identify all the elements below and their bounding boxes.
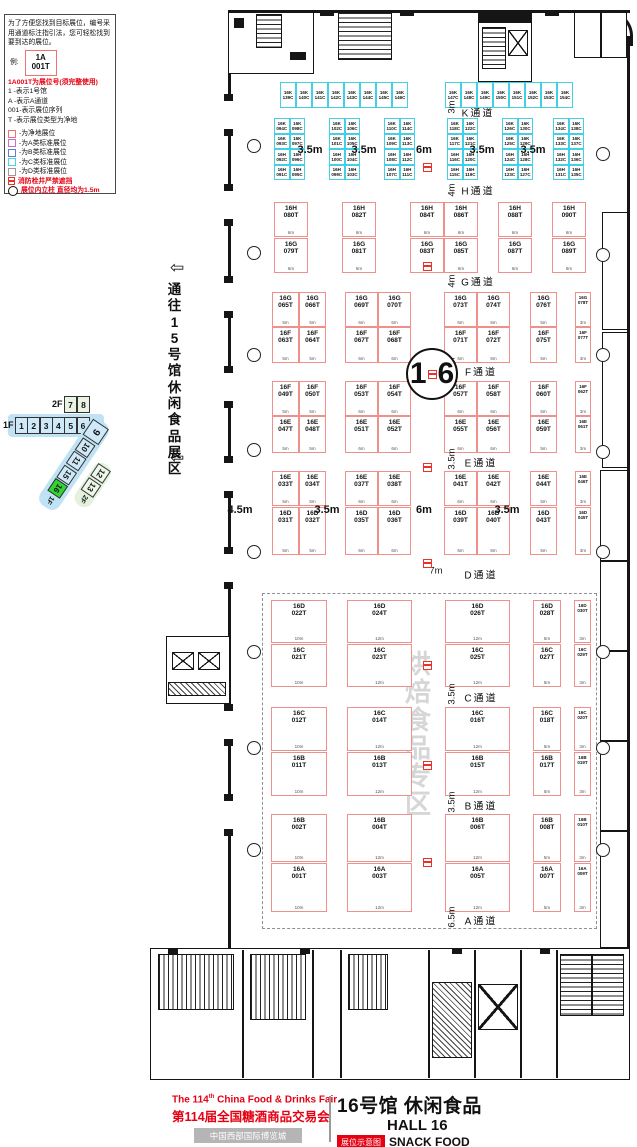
booth-width-label: 6m <box>553 231 585 236</box>
booth-width-label: 12m <box>348 745 411 750</box>
booth-16K130C: 16K130C <box>518 118 534 134</box>
door-leaf <box>224 582 233 589</box>
booth-width-label: 10m <box>272 790 326 795</box>
booth-16H092C: 16H092C <box>274 149 290 165</box>
booth-width-label: 5m <box>273 410 298 415</box>
booth-prefix: 16G <box>509 241 521 248</box>
booth-16K153C: 16K153C <box>541 82 557 108</box>
booth-number: 041T <box>453 481 468 488</box>
booth-16C020T: 16C020T3m <box>574 707 591 751</box>
booth-number: 067T <box>354 337 369 344</box>
booth-width-label: 6m <box>445 267 477 272</box>
booth-width-label: 6m <box>346 500 377 505</box>
booth-number: 104C <box>347 157 358 162</box>
booth-width-label: 6m <box>346 410 377 415</box>
corridor-char: 号 <box>166 347 183 363</box>
booth-number: 126C <box>504 126 515 131</box>
booth-16H127C: 16H127C <box>518 165 534 181</box>
booth-16K098C: 16K098C <box>290 118 306 134</box>
booth-prefix: 16G <box>355 295 367 302</box>
booth-16K133C: 16K133C <box>553 134 569 150</box>
booth-number: 065T <box>278 302 293 309</box>
booth-prefix: 16B <box>541 817 553 824</box>
booth-number: 016T <box>470 717 485 724</box>
booth-number: 145C <box>379 95 390 100</box>
booth-number: 146C <box>395 95 406 100</box>
booth-width-label: 5m <box>273 549 298 554</box>
structure-detail <box>474 950 476 1078</box>
booth-number: 066T <box>305 302 320 309</box>
booth-number: 073T <box>453 302 468 309</box>
booth-16B011T: 16B011T10m <box>271 752 327 796</box>
booth-width-label: 12m <box>348 856 411 861</box>
booth-16F049T: 16F049T5m <box>272 381 299 416</box>
fan-unit <box>198 652 220 670</box>
booth-16K110C: 16K110C <box>384 118 400 134</box>
booth-number: 018T <box>540 717 555 724</box>
booth-16K150C: 16K150C <box>493 82 509 108</box>
booth-width-label: 10m <box>272 681 326 686</box>
booth-prefix: 16H <box>353 205 365 212</box>
booth-16K122C: 16K122C <box>463 118 479 134</box>
booth-number: 044T <box>536 481 551 488</box>
booth-16G089T: 16G089T6m <box>552 238 586 273</box>
booth-16D026T: 16D026T12m <box>445 600 510 643</box>
booth-width-label: 6m <box>343 231 375 236</box>
pillar-column <box>247 443 261 457</box>
booth-prefix: 16B <box>293 755 305 762</box>
booth-width-label: 10m <box>272 745 326 750</box>
legend-key-item: -为净地展位 <box>8 129 112 139</box>
booth-16C012T: 16C012T10m <box>271 707 327 751</box>
booth-width-label: 12m <box>446 745 509 750</box>
booth-number: 037T <box>354 481 369 488</box>
corridor-char: 往 <box>166 298 183 314</box>
booth-number: 122C <box>465 126 476 131</box>
booth-16C021T: 16C021T10m <box>271 644 327 687</box>
booth-number: 022T <box>292 610 307 617</box>
structure-detail <box>168 682 226 696</box>
booth-width-label: 6m <box>445 549 476 554</box>
booth-number: 015T <box>470 762 485 769</box>
door-leaf <box>224 311 233 318</box>
stairs-n1 <box>338 12 392 60</box>
booth-width-label: 6m <box>346 549 377 554</box>
booth-number: 084T <box>420 212 435 219</box>
booth-number: 034T <box>305 481 320 488</box>
booth-16E034T: 16E034T5m <box>299 471 326 506</box>
booth-width-label: 5m <box>531 500 556 505</box>
booth-16K114C: 16K114C <box>400 118 416 134</box>
booth-16D028T: 16D028T5m <box>533 600 561 643</box>
booth-number: 127C <box>520 172 531 177</box>
booth-16D039T: 16D039T6m <box>444 507 477 555</box>
booth-number: 027T <box>540 654 555 661</box>
structure-detail <box>312 950 314 1078</box>
booth-16K118C: 16K118C <box>447 118 463 134</box>
booth-16C018T: 16C018T5m <box>533 707 561 751</box>
aisle-label-H通道: H通道 <box>461 183 494 198</box>
booth-16C025T: 16C025T12m <box>445 644 510 687</box>
booth-width-label: 5m <box>534 681 560 686</box>
door-s <box>300 948 310 954</box>
booth-number: 098C <box>292 126 303 131</box>
door-opening <box>226 710 234 740</box>
booth-width-label: 12m <box>446 856 509 861</box>
structure-detail <box>600 830 628 832</box>
aisle-label-G通道: G通道 <box>461 274 495 289</box>
booth-number: 055T <box>453 426 468 433</box>
booth-prefix: 16E <box>538 474 550 481</box>
fire-hydrant-icon <box>423 661 432 670</box>
booth-16H107C: 16H107C <box>384 165 400 181</box>
booth-class-swatch <box>8 130 16 138</box>
booth-number: 088T <box>508 212 523 219</box>
booth-width-label: 6m <box>379 447 410 452</box>
floor2-label: 2F <box>52 399 63 409</box>
booth-16E059T: 16E059T5m <box>530 416 557 453</box>
booth-16H090T: 16H090T6m <box>552 202 586 237</box>
booth-prefix: 16F <box>307 330 318 337</box>
booth-number: 124C <box>504 157 515 162</box>
booth-number: 151C <box>512 95 523 100</box>
booth-width-label: 6m <box>478 447 509 452</box>
booth-number: 125C <box>504 141 515 146</box>
category-en: SNACK FOOD <box>389 1135 470 1147</box>
booth-prefix: 16G <box>353 241 365 248</box>
booth-16H115C: 16H115C <box>447 165 463 181</box>
booth-16A001T: 16A001T10m <box>271 863 327 912</box>
door-n1 <box>320 10 334 16</box>
booth-width-label: 5m <box>273 357 298 362</box>
pillar-icon <box>8 186 18 196</box>
booth-width-label: 5m <box>534 637 560 642</box>
booth-prefix: 16C <box>374 647 386 654</box>
booth-16K101C: 16K101C <box>329 134 345 150</box>
booth-16G065T: 16G065T5m <box>272 292 299 327</box>
pillar-column <box>596 545 610 559</box>
structure-detail <box>600 560 628 562</box>
booth-prefix: 16D <box>472 603 484 610</box>
booth-16F058T: 16F058T6m <box>477 381 510 416</box>
booth-16K146C: 16K146C <box>392 82 408 108</box>
booth-16H123C: 16H123C <box>502 165 518 181</box>
booth-number: 063T <box>278 337 293 344</box>
aisle-label-C通道: C通道 <box>464 690 497 705</box>
booth-prefix: 16G <box>388 295 400 302</box>
pillar-column <box>247 645 261 659</box>
booth-number: 131C <box>555 172 566 177</box>
booth-number: 107C <box>386 172 397 177</box>
booth-width-label: 5m <box>273 321 298 326</box>
booth-number: 089T <box>562 248 577 255</box>
booth-16E055T: 16E055T6m <box>444 416 477 453</box>
booth-16F050T: 16F050T5m <box>299 381 326 416</box>
booth-width-label: 3m <box>575 790 590 795</box>
booth-width-label: 5m <box>273 500 298 505</box>
booth-width-label: 6m <box>445 410 476 415</box>
booth-width-label: 6m <box>478 549 509 554</box>
booth-number: 137C <box>571 141 582 146</box>
booth-width-label: 6m <box>499 231 531 236</box>
corridor-char: 食 <box>166 412 183 428</box>
booth-width-label: 3m <box>576 447 590 452</box>
structure-detail <box>600 12 602 58</box>
aisle-label-D通道: D通道 <box>464 567 497 582</box>
booth-number: 096C <box>292 157 303 162</box>
booth-width-label: 3m <box>575 681 590 686</box>
pillar-column <box>247 246 261 260</box>
hall-number-marker: 1 6 <box>406 348 458 400</box>
booth-width-label: 12m <box>348 790 411 795</box>
rooms-east-3 <box>600 470 628 948</box>
booth-number: 004T <box>372 824 387 831</box>
booth-number: 152C <box>528 95 539 100</box>
booth-width-label: 3m <box>576 500 590 505</box>
structure-detail <box>340 950 342 1078</box>
booth-number: 008T <box>540 824 555 831</box>
booth-number: 079T <box>284 248 299 255</box>
booth-16C023T: 16C023T12m <box>347 644 412 687</box>
booth-width-label: 5m <box>531 357 556 362</box>
legend-key-label: -为B类标准展位 <box>19 148 67 158</box>
booth-width-label: 5m <box>273 447 298 452</box>
fire-hydrant-icon <box>8 177 15 185</box>
door-leaf <box>224 704 233 711</box>
booth-number: 043T <box>536 517 551 524</box>
booth-number: 069T <box>354 302 369 309</box>
booth-width-label: 5m <box>534 856 560 861</box>
booth-16K154C: 16K154C <box>557 82 573 108</box>
booth-number: 052T <box>387 426 402 433</box>
aisle-label-K通道: K通道 <box>462 105 495 120</box>
booth-16B002T: 16B002T10m <box>271 814 327 862</box>
booth-prefix: 16A <box>293 866 305 873</box>
booth-16H136C: 16H136C <box>569 149 585 165</box>
booth-number: 002T <box>292 824 307 831</box>
booth-prefix: 16H <box>455 205 467 212</box>
booth-16K113C: 16K113C <box>400 134 416 150</box>
pillar-column <box>247 139 261 153</box>
aisle-label-E通道: E通道 <box>465 455 498 470</box>
structure-detail <box>520 950 522 1078</box>
booth-number: 032T <box>305 517 320 524</box>
booth-prefix: 16E <box>307 474 319 481</box>
booth-number: 150C <box>496 95 507 100</box>
booth-width-label: 6m <box>346 321 377 326</box>
booth-number: 045T <box>578 515 588 520</box>
booth-prefix: 16B <box>374 817 386 824</box>
booth-number: 153C <box>544 95 555 100</box>
elevator-n <box>508 30 528 56</box>
dimension-label: 6m <box>416 144 432 156</box>
door-opening <box>226 462 234 492</box>
aisle-label-F通道: F通道 <box>465 364 497 379</box>
booth-16H119C: 16H119C <box>463 165 479 181</box>
booth-16H103C: 16H103C <box>345 165 361 181</box>
booth-number: 075T <box>536 337 551 344</box>
booth-number: 101C <box>331 141 342 146</box>
door-leaf <box>224 129 233 136</box>
door-leaf <box>224 184 233 191</box>
booth-number: 028T <box>540 610 555 617</box>
booth-number: 091C <box>276 172 287 177</box>
booth-16K094C: 16K094C <box>274 118 290 134</box>
booth-16B006T: 16B006T12m <box>445 814 510 862</box>
booth-number: 103C <box>347 172 358 177</box>
booth-prefix: 16G <box>279 295 291 302</box>
booth-number: 128C <box>520 157 531 162</box>
booth-number: 117C <box>449 141 460 146</box>
dimension-label: 3.5m <box>494 504 519 516</box>
booth-width-label: 5m <box>531 321 556 326</box>
booth-16A005T: 16A005T12m <box>445 863 510 912</box>
booth-number: 141C <box>315 95 326 100</box>
door-opening <box>226 372 234 402</box>
booth-prefix: 16G <box>563 241 575 248</box>
booth-16D031T: 16D031T5m <box>272 507 299 555</box>
legend-example-label: 例: <box>10 58 19 68</box>
booth-width-label: 6m <box>379 410 410 415</box>
corridor-char: 5 <box>166 331 183 347</box>
booth-16B019T: 16B019T3m <box>574 752 591 796</box>
booth-prefix: 16F <box>389 384 400 391</box>
booth-16F068T: 16F068T6m <box>378 327 411 363</box>
booth-16H132C: 16H132C <box>553 149 569 165</box>
wing-floor-label: 1F <box>44 494 55 506</box>
booth-width-label: 5m <box>300 410 325 415</box>
dimension-label: 3.5m <box>297 144 322 156</box>
booth-prefix: 16F <box>389 330 400 337</box>
nav-hall-5: 5 <box>64 417 77 434</box>
booth-number: 061T <box>578 424 588 429</box>
corridor-char: 通 <box>166 282 183 298</box>
booth-prefix: 16D <box>541 603 553 610</box>
booth-number: 035T <box>354 517 369 524</box>
booth-width-label: 12m <box>348 681 411 686</box>
booth-prefix: 16B <box>293 817 305 824</box>
left-arrow-icon: ⇦ <box>170 258 184 278</box>
aisle-label-B通道: B通道 <box>465 798 498 813</box>
booth-width-label: 6m <box>379 321 410 326</box>
booth-prefix: 16F <box>488 330 499 337</box>
door-leaf <box>224 739 233 746</box>
corridor-char: 品 <box>166 429 183 445</box>
booth-width-label: 5m <box>300 447 325 452</box>
shaft-hatched <box>432 982 472 1058</box>
fire-hydrant-icon <box>423 761 432 770</box>
booth-width-label: 6m <box>445 321 476 326</box>
booth-prefix: 16A <box>472 866 484 873</box>
booth-number: 076T <box>536 302 551 309</box>
booth-number: 024T <box>372 610 387 617</box>
corridor-char: 休 <box>166 380 183 396</box>
booth-number: 010T <box>577 822 587 827</box>
booth-16K145C: 16K145C <box>376 82 392 108</box>
booth-prefix: 16E <box>488 474 500 481</box>
booth-prefix: 16E <box>389 474 401 481</box>
booth-number: 053T <box>354 391 369 398</box>
booth-number: 062T <box>578 389 588 394</box>
dimension-label: 4.5m <box>227 504 252 516</box>
booth-number: 059T <box>536 426 551 433</box>
legend-key-item: -为A类标准展位 <box>8 139 112 149</box>
booth-16K093C: 16K093C <box>274 134 290 150</box>
booth-number: 068T <box>387 337 402 344</box>
door-s <box>168 948 178 954</box>
booth-prefix: 16C <box>374 710 386 717</box>
legend-key-label: -为A类标准展位 <box>19 139 67 149</box>
booth-16G066T: 16G066T5m <box>299 292 326 327</box>
structure-detail <box>290 52 306 60</box>
booth-16G081T: 16G081T6m <box>342 238 376 273</box>
booth-number: 012T <box>292 717 307 724</box>
fire-hydrant-icon <box>423 463 432 472</box>
booth-number: 095C <box>292 172 303 177</box>
booth-16K151C: 16K151C <box>509 82 525 108</box>
booth-number: 031T <box>278 517 293 524</box>
booth-16A009T: 16A009T3m <box>574 863 591 912</box>
booth-number: 030T <box>577 608 587 613</box>
booth-width-label: 6m <box>379 549 410 554</box>
booth-16D045T: 16D045T3m <box>575 507 591 555</box>
door-leaf <box>224 491 233 498</box>
booth-number: 135C <box>571 172 582 177</box>
booth-number: 113C <box>402 141 413 146</box>
door-opening <box>226 553 234 583</box>
booth-prefix: 16H <box>285 205 297 212</box>
aisle-dim-E通道: 3.5m <box>447 448 458 469</box>
booth-16F063T: 16F063T5m <box>272 327 299 363</box>
aisle-dim-G通道: 4m <box>447 274 458 287</box>
pillar-column <box>596 741 610 755</box>
booth-width-label: 3m <box>575 637 590 642</box>
booth-16D043T: 16D043T5m <box>530 507 557 555</box>
door-n3 <box>545 10 559 16</box>
toilet-stalls-3 <box>348 954 388 1010</box>
booth-prefix: 16E <box>488 419 500 426</box>
structure-detail <box>242 950 244 1078</box>
door-n2 <box>400 10 414 16</box>
booth-16B008T: 16B008T5m <box>533 814 561 862</box>
booth-number: 036T <box>387 517 402 524</box>
booth-number: 123C <box>504 172 515 177</box>
booth-number: 078T <box>578 300 588 305</box>
booth-16F072T: 16F072T6m <box>477 327 510 363</box>
booth-number: 025T <box>470 654 485 661</box>
booth-16F053T: 16F053T6m <box>345 381 378 416</box>
booth-number: 130C <box>520 126 531 131</box>
booth-number: 116C <box>449 157 460 162</box>
venue-name: 中国西部国际博览城 <box>194 1128 302 1143</box>
booth-16K102C: 16K102C <box>329 118 345 134</box>
booth-prefix: 16E <box>280 474 292 481</box>
booth-number: 072T <box>486 337 501 344</box>
nav-hall-7: 7 <box>64 396 77 413</box>
booth-16K140C: 16K140C <box>296 82 312 108</box>
booth-number: 070T <box>387 302 402 309</box>
booth-number: 120C <box>465 157 476 162</box>
booth-number: 081T <box>352 248 367 255</box>
booth-number: 109C <box>386 141 397 146</box>
door-leaf <box>224 219 233 226</box>
booth-width-label: 6m <box>478 410 509 415</box>
booth-16G074T: 16G074T6m <box>477 292 510 327</box>
legend-booth-no-note: 1A001T为展位号(须完整使用) <box>8 78 112 88</box>
booth-number: 021T <box>292 654 307 661</box>
door-leaf <box>224 276 233 283</box>
pillar-column <box>247 741 261 755</box>
